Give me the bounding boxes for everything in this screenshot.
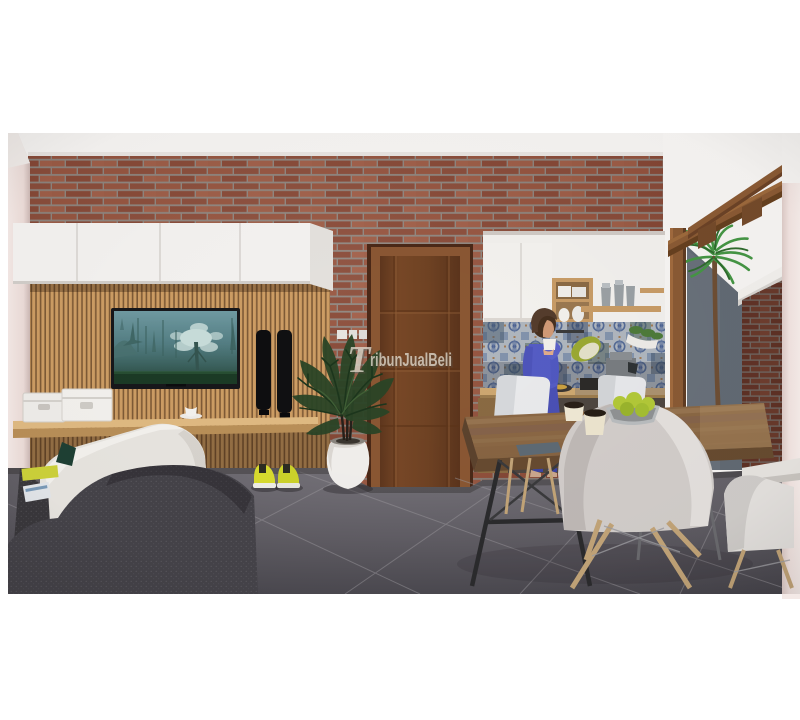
svg-text:T: T — [347, 339, 372, 381]
svg-text:ribunJualBeli: ribunJualBeli — [370, 349, 452, 370]
